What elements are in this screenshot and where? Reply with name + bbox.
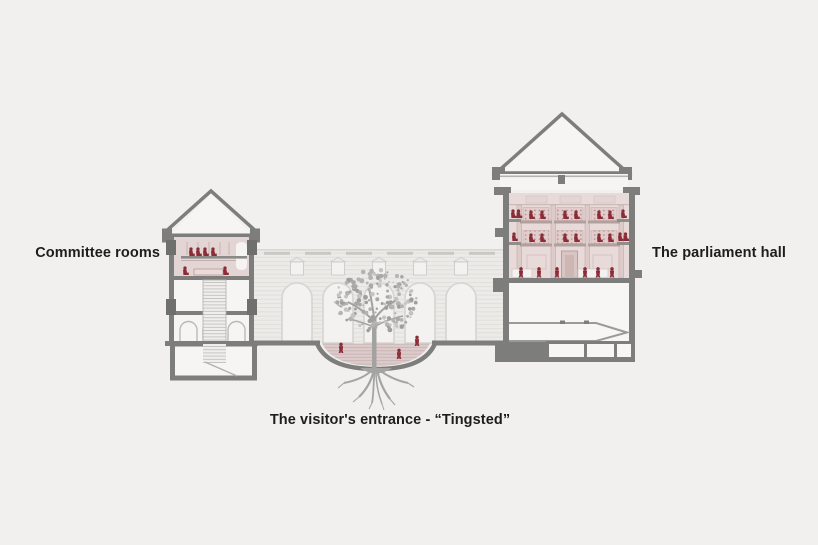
parliament-wall-right — [629, 190, 635, 362]
committee-table — [194, 269, 223, 275]
parliament-wall-left — [503, 190, 509, 342]
label-committee-rooms: Committee rooms — [35, 245, 160, 261]
parliament-roof — [496, 114, 628, 173]
parliament-basement — [495, 341, 635, 362]
attic-post — [558, 175, 565, 184]
parliament-building — [492, 114, 642, 362]
tree-roots — [338, 368, 414, 410]
arched-courtyard-facade — [254, 249, 503, 343]
label-visitors-entrance: The visitor's entrance - “Tingsted” — [270, 412, 510, 428]
hall-upper-panels — [526, 196, 615, 203]
label-parliament-hall: The parliament hall — [652, 245, 786, 261]
committee-mezzanine — [181, 256, 247, 259]
architectural-section-diagram: Committee rooms The parliament hall The … — [0, 0, 818, 545]
hall-floor-slab — [496, 278, 635, 283]
tower-basement — [173, 344, 255, 378]
facade-cornice-line — [254, 249, 503, 251]
committee-rooms-tower — [162, 191, 260, 378]
tower-staircase — [203, 280, 226, 343]
section-drawing: Committee rooms The parliament hall The … — [0, 0, 818, 545]
